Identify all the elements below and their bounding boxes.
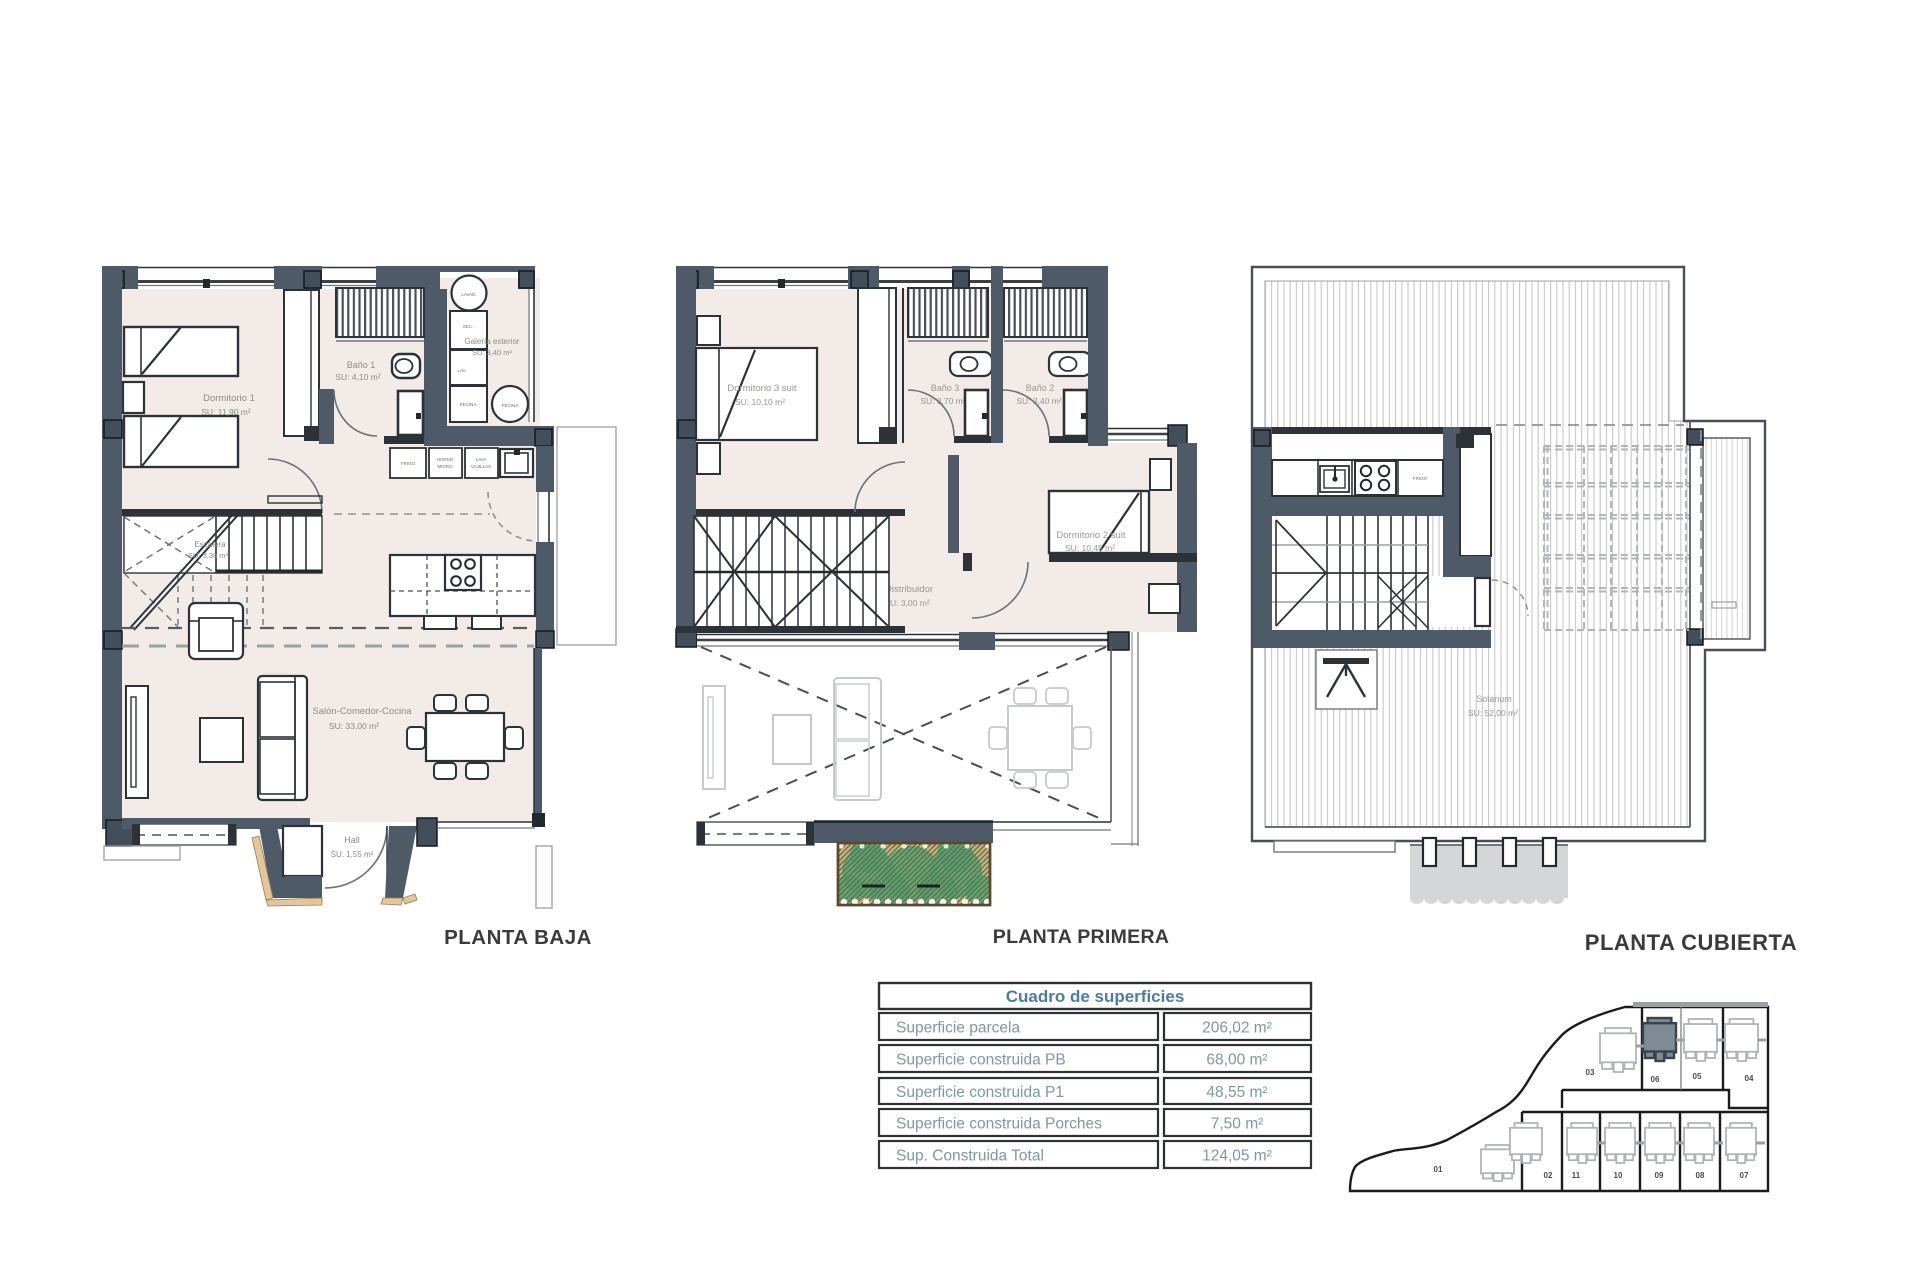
svg-text:SU: 3,00 m²: SU: 3,00 m² [884,598,930,608]
svg-text:206,02 m²: 206,02 m² [1202,1020,1272,1037]
svg-text:Dormitorio 1: Dormitorio 1 [203,393,255,404]
svg-text:Dormitorio 2 suit: Dormitorio 2 suit [1056,530,1126,541]
svg-text:PLANTA BAJA: PLANTA BAJA [444,926,592,949]
svg-text:SU: 1,55 m²: SU: 1,55 m² [331,850,374,859]
svg-text:Dormitorio 3 suit: Dormitorio 3 suit [727,383,797,394]
svg-text:SU: 11,90 m²: SU: 11,90 m² [201,407,251,417]
svg-text:04: 04 [1745,1074,1754,1083]
svg-text:LAVA: LAVA [476,457,487,462]
svg-text:Cuadro de superficies: Cuadro de superficies [1006,987,1185,1006]
svg-text:48,55 m²: 48,55 m² [1206,1084,1267,1101]
svg-text:Distribuidor: Distribuidor [885,584,933,595]
svg-text:FRIGO: FRIGO [1413,476,1428,481]
svg-text:Superficie construida P1: Superficie construida P1 [896,1084,1064,1101]
svg-text:SU: 4,10 m²: SU: 4,10 m² [335,372,381,382]
svg-text:Superficie construida PB: Superficie construida PB [896,1052,1066,1069]
svg-text:7,50 m²: 7,50 m² [1211,1116,1264,1133]
svg-text:PECINA: PECINA [502,403,519,408]
svg-text:LAVAD.: LAVAD. [461,292,476,297]
svg-text:05: 05 [1693,1072,1702,1081]
svg-text:09: 09 [1655,1171,1664,1180]
svg-text:VAJILLAS: VAJILLAS [471,464,491,469]
svg-text:SU: 3,40 m²: SU: 3,40 m² [1016,396,1062,406]
svg-text:Escalera: Escalera [194,540,226,549]
svg-text:06: 06 [1651,1075,1660,1084]
svg-text:SU: 3,30 m²: SU: 3,30 m² [188,551,229,560]
svg-text:01: 01 [1434,1165,1443,1174]
svg-text:PECINA: PECINA [460,402,477,407]
svg-text:Baño 2: Baño 2 [1026,383,1055,393]
svg-text:SU: 52,00 m²: SU: 52,00 m² [1468,708,1518,718]
svg-text:Sup. Construida Total: Sup. Construida Total [896,1148,1044,1165]
svg-text:SEC.: SEC. [463,324,474,329]
svg-text:07: 07 [1740,1171,1749,1180]
svg-text:LAV.: LAV. [457,368,466,373]
svg-text:SU: 3,70 m²: SU: 3,70 m² [920,396,966,406]
svg-text:MICRO: MICRO [438,464,453,469]
svg-text:124,05 m²: 124,05 m² [1202,1148,1272,1165]
svg-text:PLANTA CUBIERTA: PLANTA CUBIERTA [1585,930,1797,955]
svg-text:HORNO: HORNO [437,457,454,462]
svg-text:Galería exterior: Galería exterior [464,337,519,346]
svg-text:Baño 3: Baño 3 [931,383,960,393]
svg-text:02: 02 [1544,1171,1553,1180]
svg-text:Hall: Hall [344,835,360,845]
svg-text:08: 08 [1696,1171,1705,1180]
svg-text:Superficie parcela: Superficie parcela [896,1020,1020,1037]
svg-text:Superficie construida Porches: Superficie construida Porches [896,1116,1102,1133]
svg-text:68,00 m²: 68,00 m² [1206,1052,1267,1069]
svg-text:03: 03 [1586,1068,1595,1077]
svg-text:FRIGO: FRIGO [401,461,416,466]
svg-text:PLANTA PRIMERA: PLANTA PRIMERA [993,926,1169,948]
svg-text:Salón-Comedor-Cocina: Salón-Comedor-Cocina [312,706,412,717]
svg-text:SU: 33,00 m²: SU: 33,00 m² [329,721,379,731]
svg-text:SU: 10,10 m²: SU: 10,10 m² [735,397,785,407]
svg-text:11: 11 [1572,1171,1581,1180]
svg-text:SU: 3,40 m²: SU: 3,40 m² [472,348,513,357]
svg-text:Solarium: Solarium [1476,694,1512,704]
svg-text:SU: 10,45 m²: SU: 10,45 m² [1065,543,1115,553]
svg-text:10: 10 [1614,1171,1623,1180]
svg-text:Baño 1: Baño 1 [347,360,376,370]
